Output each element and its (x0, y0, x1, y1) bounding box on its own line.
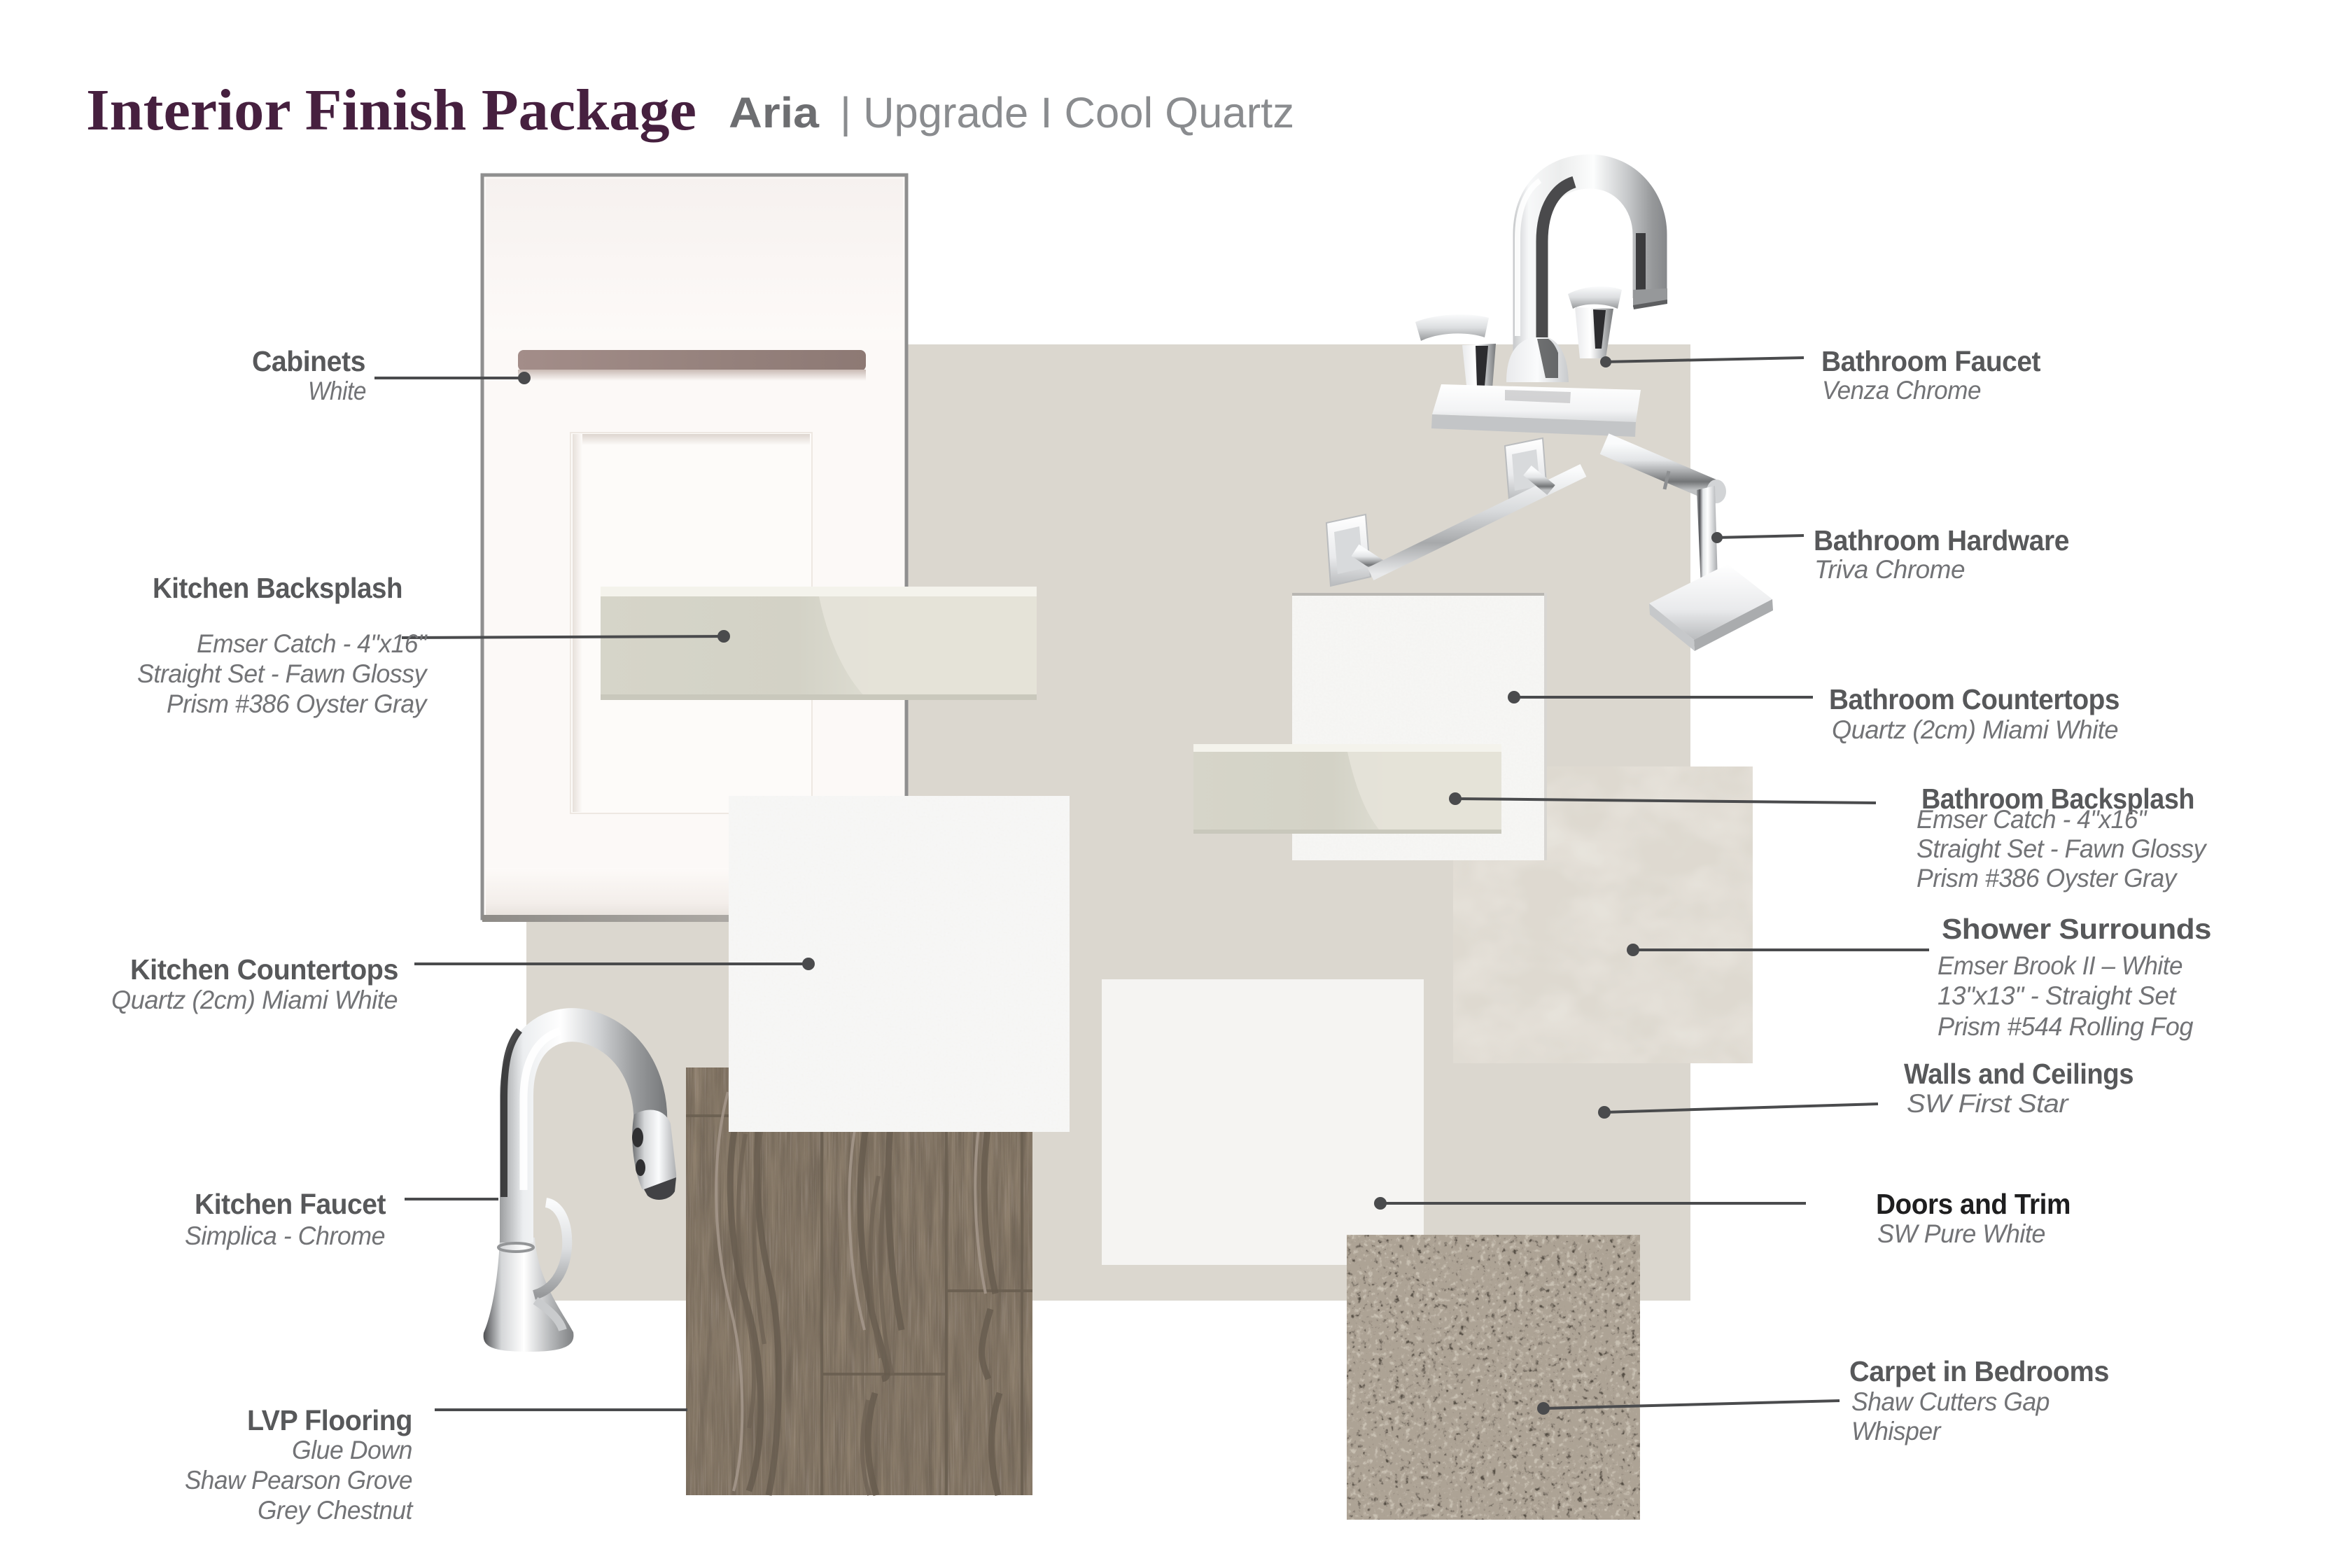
svg-text:Emser Catch - 4"x16": Emser Catch - 4"x16" (197, 629, 428, 658)
svg-text:Quartz (2cm) Miami White: Quartz (2cm) Miami White (111, 986, 398, 1014)
svg-text:SW First Star: SW First Star (1907, 1089, 2069, 1118)
svg-text:Bathroom Hardware: Bathroom Hardware (1814, 524, 2069, 556)
svg-text:Emser Brook II – White: Emser Brook II – White (1938, 951, 2183, 980)
svg-text:Shaw Cutters Gap: Shaw Cutters Gap (1851, 1387, 2050, 1416)
svg-text:Bathroom Countertops: Bathroom Countertops (1829, 683, 2120, 715)
svg-text:Carpet in Bedrooms: Carpet in Bedrooms (1849, 1355, 2109, 1387)
svg-text:Straight Set - Fawn Glossy: Straight Set - Fawn Glossy (1917, 834, 2208, 863)
svg-text:LVP Flooring: LVP Flooring (247, 1404, 412, 1436)
svg-text:Interior Finish Package: Interior Finish Package (86, 78, 696, 143)
svg-text:Bathroom Faucet: Bathroom Faucet (1821, 345, 2041, 377)
svg-text:Walls and Ceilings: Walls and Ceilings (1904, 1058, 2134, 1090)
svg-text:Whisper: Whisper (1851, 1417, 1942, 1445)
svg-text:Prism #386 Oyster Gray: Prism #386 Oyster Gray (1917, 864, 2178, 892)
svg-text:| Upgrade I Cool Quartz: | Upgrade I Cool Quartz (840, 89, 1294, 136)
svg-text:Shaw Pearson Grove: Shaw Pearson Grove (185, 1466, 412, 1494)
svg-text:SW Pure White: SW Pure White (1877, 1219, 2045, 1248)
svg-text:Grey Chestnut: Grey Chestnut (258, 1496, 414, 1525)
svg-text:Cabinets: Cabinets (252, 345, 365, 377)
svg-text:White: White (308, 377, 366, 405)
svg-text:Triva Chrome: Triva Chrome (1814, 555, 1965, 584)
svg-text:Quartz (2cm) Miami White: Quartz (2cm) Miami White (1832, 715, 2118, 744)
svg-text:Emser Catch - 4"x16": Emser Catch - 4"x16" (1917, 805, 2148, 834)
svg-text:Glue Down: Glue Down (292, 1436, 412, 1464)
svg-text:13"x13" - Straight Set: 13"x13" - Straight Set (1938, 981, 2177, 1010)
svg-text:Kitchen Faucet: Kitchen Faucet (195, 1188, 386, 1220)
svg-text:Prism #544 Rolling Fog: Prism #544 Rolling Fog (1938, 1012, 2194, 1041)
svg-text:Kitchen Backsplash: Kitchen Backsplash (153, 572, 402, 604)
svg-text:Prism #386 Oyster Gray: Prism #386 Oyster Gray (167, 689, 428, 718)
svg-text:Straight Set - Fawn Glossy: Straight Set - Fawn Glossy (137, 659, 428, 688)
svg-text:Shower Surrounds: Shower Surrounds (1942, 913, 2211, 945)
svg-text:Venza Chrome: Venza Chrome (1822, 376, 1981, 405)
svg-text:Kitchen Countertops: Kitchen Countertops (130, 953, 398, 986)
svg-text:Doors and Trim: Doors and Trim (1876, 1188, 2071, 1220)
svg-text:Aria: Aria (729, 89, 820, 136)
svg-text:Simplica - Chrome: Simplica - Chrome (185, 1221, 385, 1250)
